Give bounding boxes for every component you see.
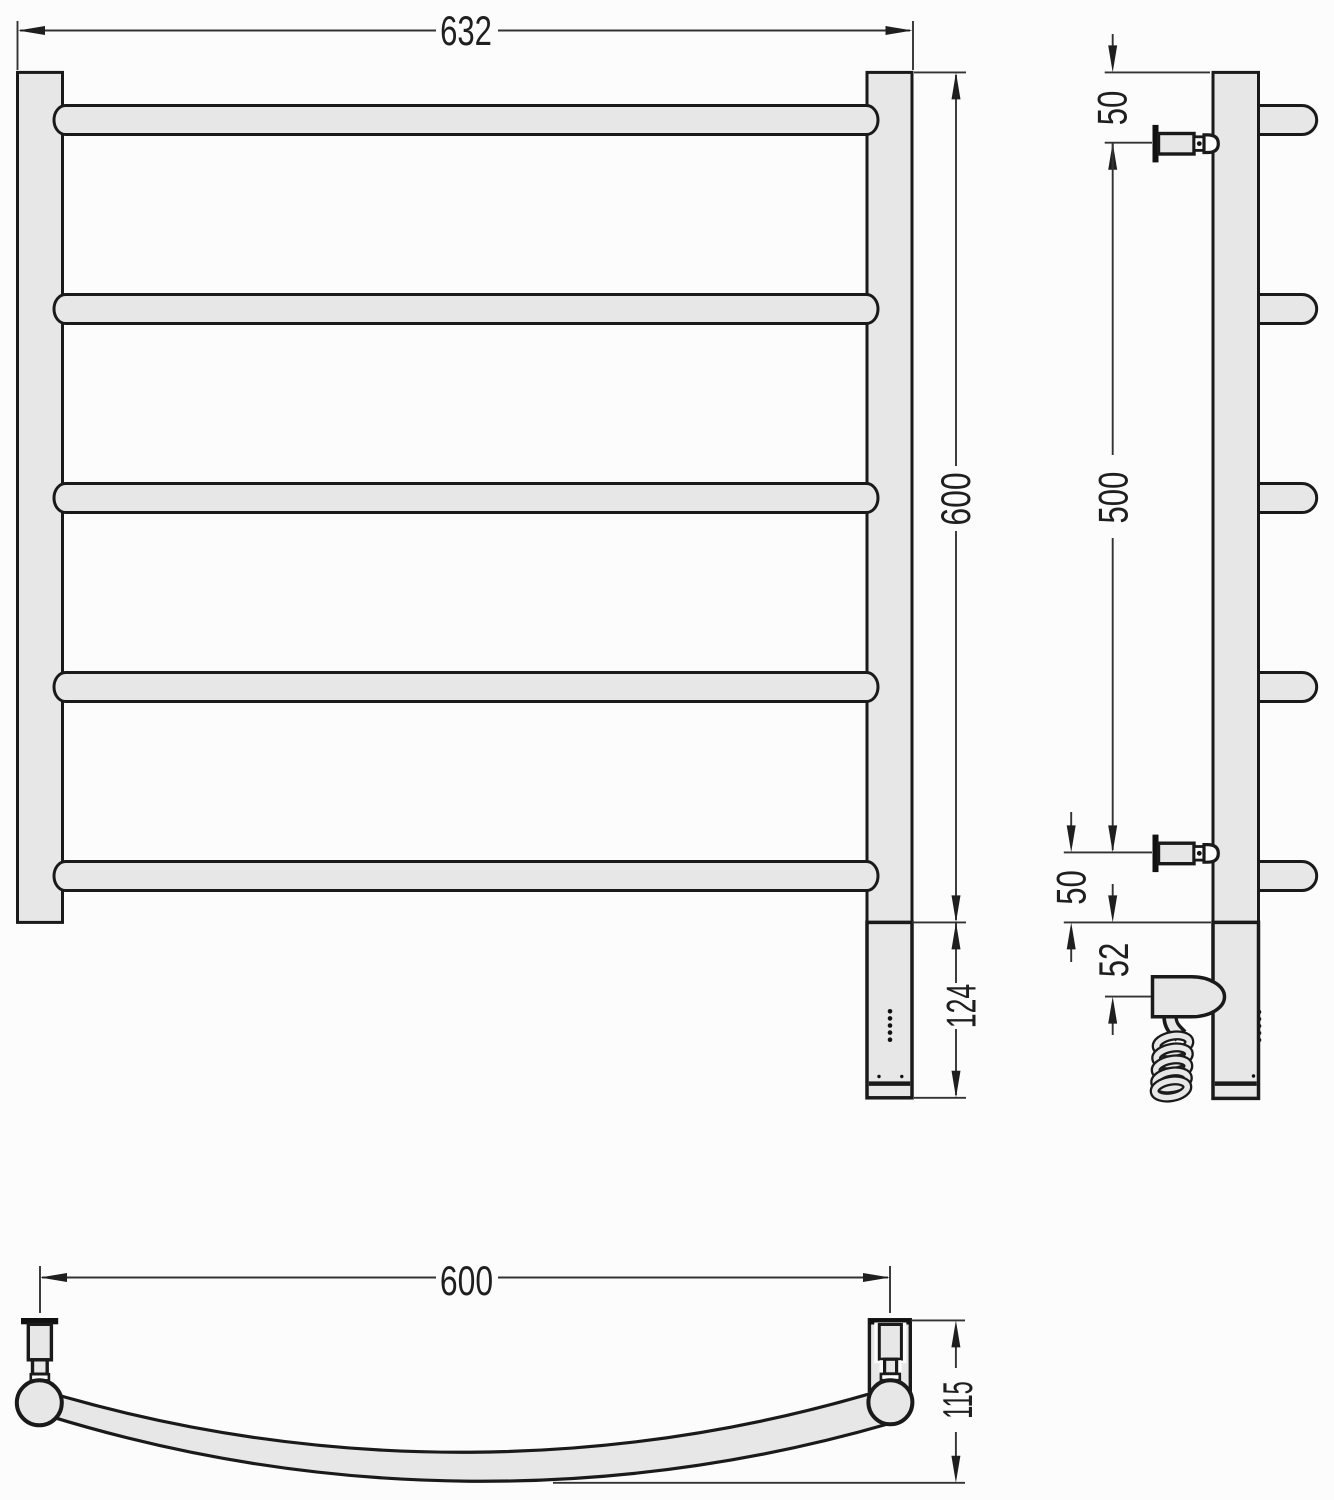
svg-text:600: 600: [932, 472, 979, 525]
svg-text:52: 52: [1090, 943, 1137, 978]
svg-text:50: 50: [1089, 91, 1136, 126]
svg-text:632: 632: [440, 7, 492, 54]
svg-text:115: 115: [935, 1381, 982, 1418]
svg-text:500: 500: [1090, 472, 1137, 524]
svg-text:124: 124: [938, 984, 985, 1028]
svg-text:50: 50: [1048, 870, 1095, 905]
svg-text:600: 600: [440, 1257, 493, 1304]
